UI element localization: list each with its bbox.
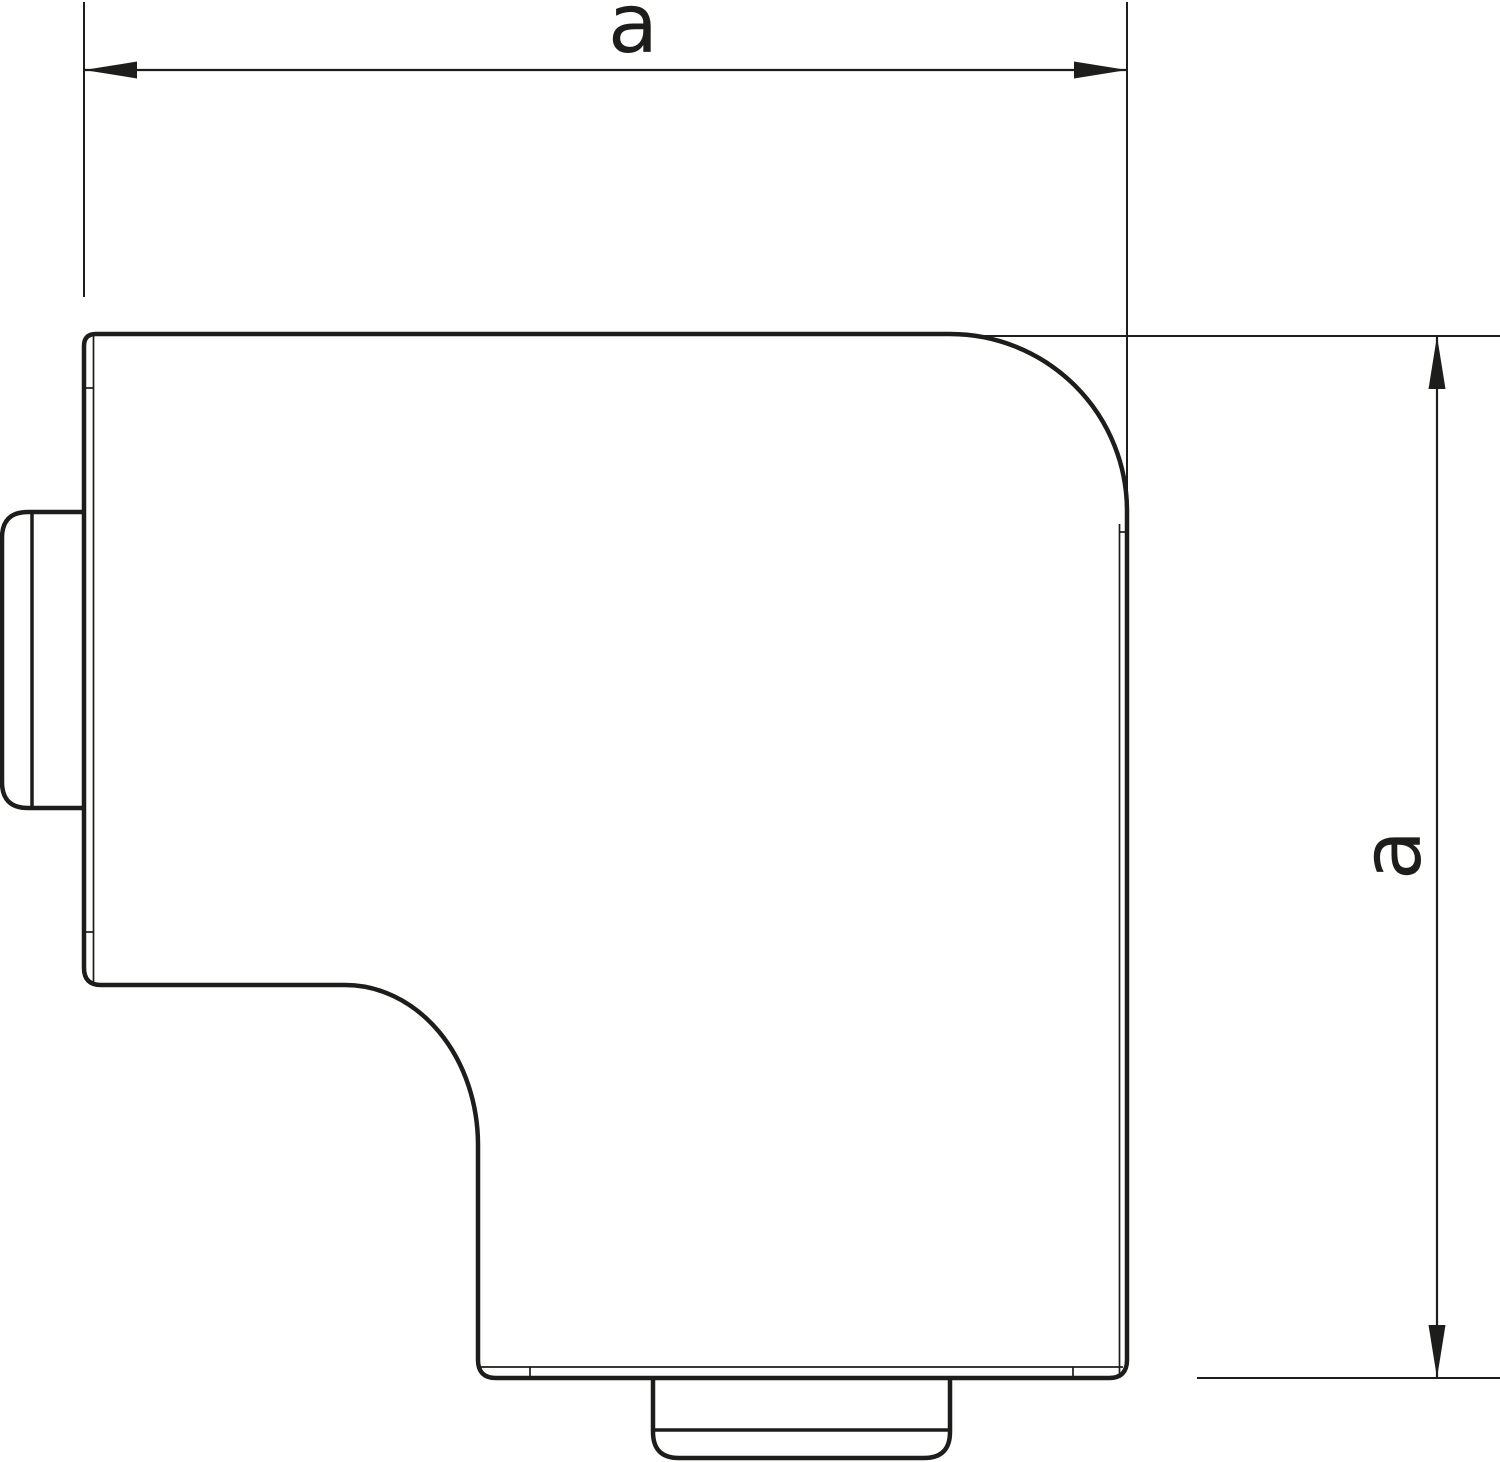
drawing-canvas: a a [0, 0, 1500, 1462]
technical-drawing: a a [0, 0, 1500, 1462]
drawing-background [0, 0, 1500, 1462]
width-dimension-label: a [608, 0, 658, 72]
height-dimension-label: a [1345, 830, 1440, 880]
